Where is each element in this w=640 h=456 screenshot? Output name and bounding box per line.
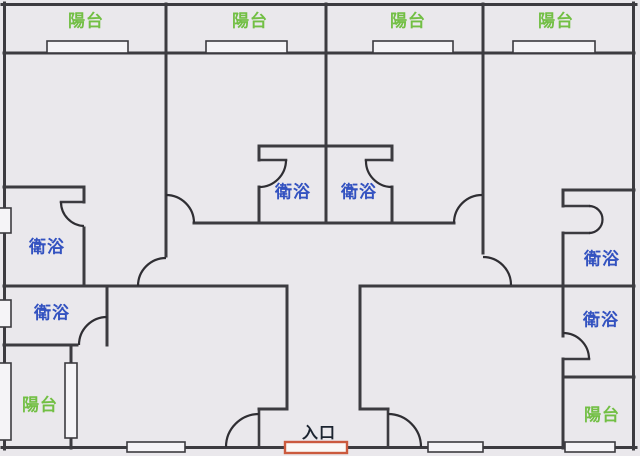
balcony-label: 陽台 <box>232 7 268 32</box>
bathroom-label: 衛浴 <box>584 245 620 270</box>
window <box>428 442 483 452</box>
door-swing-arc <box>589 206 603 233</box>
door-swing-arc <box>79 317 107 345</box>
bathroom-label: 衛浴 <box>583 306 619 331</box>
floor-plan-canvas <box>0 0 640 456</box>
entrance-label: 入口 <box>302 419 336 443</box>
window <box>127 442 185 452</box>
door-swing-arc <box>61 202 84 226</box>
door-swing-arc <box>138 258 166 286</box>
balcony-label: 陽台 <box>538 7 574 32</box>
door-swing-arc <box>563 333 589 359</box>
balcony-label: 陽台 <box>390 7 426 32</box>
entrance-door <box>285 442 347 453</box>
window <box>65 363 77 438</box>
door-arcs <box>61 160 603 447</box>
balcony-label: 陽台 <box>68 7 104 32</box>
window <box>0 363 11 440</box>
window <box>565 442 615 452</box>
bathroom-label: 衛浴 <box>275 178 311 203</box>
bathroom-label: 衛浴 <box>341 178 377 203</box>
window <box>0 300 11 327</box>
bathroom-label: 衛浴 <box>29 233 65 258</box>
window <box>206 41 287 53</box>
window <box>0 208 11 233</box>
door-swing-arc <box>483 257 511 285</box>
balcony-label: 陽台 <box>22 391 58 416</box>
door-swing-arc <box>388 414 421 447</box>
door-swing-arc <box>454 195 482 223</box>
window <box>47 41 128 53</box>
walls <box>2 3 636 449</box>
windows <box>0 41 615 452</box>
bathroom-label: 衛浴 <box>34 299 70 324</box>
door-swing-arc <box>226 414 259 447</box>
window <box>373 41 453 53</box>
door-swing-arc <box>166 195 194 223</box>
balcony-label: 陽台 <box>584 401 620 426</box>
window <box>513 41 595 53</box>
